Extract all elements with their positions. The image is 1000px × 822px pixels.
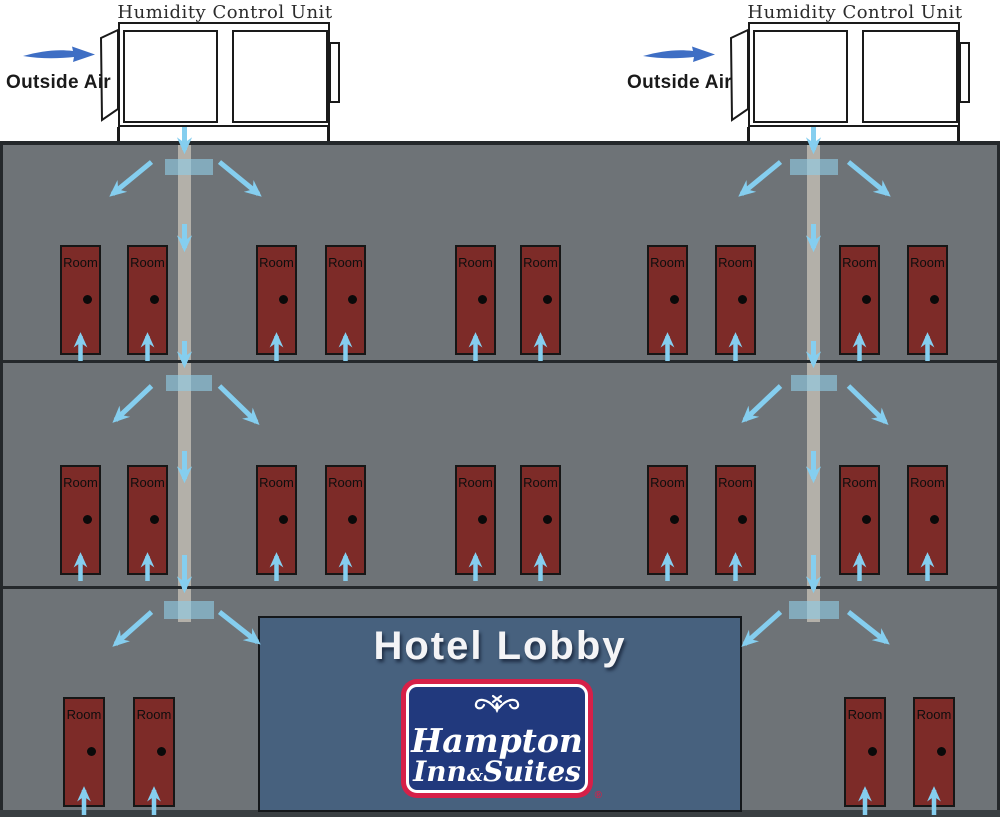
door-knob-icon xyxy=(478,515,487,524)
unit-side-vent xyxy=(329,42,340,103)
door-knob-icon xyxy=(279,295,288,304)
room-door: Room xyxy=(913,697,955,807)
room-door: Room xyxy=(715,465,756,575)
door-knob-icon xyxy=(670,515,679,524)
room-door: Room xyxy=(133,697,175,807)
room-door: Room xyxy=(256,245,297,355)
floor-separator xyxy=(0,586,1000,589)
unit-left-compartment xyxy=(753,30,848,123)
room-door-label: Room xyxy=(909,475,946,490)
room-door-label: Room xyxy=(327,255,364,270)
room-door: Room xyxy=(839,465,880,575)
room-door-label: Room xyxy=(457,475,494,490)
door-knob-icon xyxy=(87,747,96,756)
floor-separator xyxy=(0,360,1000,363)
door-knob-icon xyxy=(83,295,92,304)
room-door-label: Room xyxy=(915,707,953,722)
door-knob-icon xyxy=(738,515,747,524)
room-door-label: Room xyxy=(522,475,559,490)
room-door-label: Room xyxy=(841,255,878,270)
room-door-label: Room xyxy=(62,475,99,490)
humidity-unit-title-right: Humidity Control Unit xyxy=(705,2,1000,23)
room-door: Room xyxy=(520,245,561,355)
hotel-humidity-diagram: { "diagram": { "units": { "left": { "tit… xyxy=(0,0,1000,817)
door-knob-icon xyxy=(348,515,357,524)
ceiling-diffuser xyxy=(166,375,212,391)
door-knob-icon xyxy=(543,515,552,524)
door-knob-icon xyxy=(279,515,288,524)
room-door: Room xyxy=(60,465,101,575)
room-door: Room xyxy=(256,465,297,575)
room-door: Room xyxy=(325,245,366,355)
unit-right-compartment xyxy=(232,30,328,123)
room-door: Room xyxy=(127,245,168,355)
door-knob-icon xyxy=(930,295,939,304)
room-door: Room xyxy=(455,465,496,575)
room-door: Room xyxy=(715,245,756,355)
unit-right-compartment xyxy=(862,30,958,123)
unit-left-compartment xyxy=(123,30,218,123)
door-knob-icon xyxy=(543,295,552,304)
room-door: Room xyxy=(455,245,496,355)
room-door: Room xyxy=(63,697,105,807)
room-door-label: Room xyxy=(717,255,754,270)
door-knob-icon xyxy=(348,295,357,304)
ceiling-diffuser xyxy=(790,159,838,175)
door-knob-icon xyxy=(868,747,877,756)
hampton-inn-suites-logo: Hampton Inn&Suites ® xyxy=(401,679,593,798)
outside-air-arrow xyxy=(643,47,715,63)
outside-air-arrow xyxy=(23,47,95,63)
room-door-label: Room xyxy=(129,255,166,270)
room-door-label: Room xyxy=(846,707,884,722)
room-door-label: Room xyxy=(717,475,754,490)
room-door: Room xyxy=(127,465,168,575)
door-knob-icon xyxy=(157,747,166,756)
door-knob-icon xyxy=(937,747,946,756)
room-door-label: Room xyxy=(129,475,166,490)
room-door-label: Room xyxy=(522,255,559,270)
unit-side-vent xyxy=(959,42,970,103)
room-door: Room xyxy=(647,465,688,575)
room-door-label: Room xyxy=(841,475,878,490)
outside-air-label-right: Outside Air xyxy=(627,72,732,94)
room-door: Room xyxy=(325,465,366,575)
logo-panel: Hampton Inn&Suites xyxy=(406,684,588,793)
ceiling-diffuser xyxy=(791,375,837,391)
door-knob-icon xyxy=(670,295,679,304)
room-door-label: Room xyxy=(62,255,99,270)
door-knob-icon xyxy=(862,295,871,304)
room-door-label: Room xyxy=(65,707,103,722)
logo-flourish-icon xyxy=(469,692,525,716)
room-door-label: Room xyxy=(909,255,946,270)
ceiling-diffuser xyxy=(165,159,213,175)
humidity-unit-title-left: Humidity Control Unit xyxy=(75,2,375,23)
ceiling-diffuser xyxy=(789,601,839,619)
room-door-label: Room xyxy=(135,707,173,722)
room-door-label: Room xyxy=(457,255,494,270)
room-door: Room xyxy=(844,697,886,807)
room-door-label: Room xyxy=(327,475,364,490)
door-knob-icon xyxy=(738,295,747,304)
logo-text-inn-suites: Inn&Suites xyxy=(409,758,585,786)
hotel-lobby: Hotel Lobby Hampton Inn&Suites ® xyxy=(258,616,742,812)
door-knob-icon xyxy=(862,515,871,524)
ceiling-diffuser xyxy=(164,601,214,619)
logo-text-hampton: Hampton xyxy=(409,724,585,757)
room-door-label: Room xyxy=(649,255,686,270)
door-knob-icon xyxy=(150,295,159,304)
room-door-label: Room xyxy=(649,475,686,490)
lobby-title: Hotel Lobby xyxy=(260,624,740,669)
room-door: Room xyxy=(839,245,880,355)
room-door: Room xyxy=(520,465,561,575)
room-door: Room xyxy=(907,465,948,575)
door-knob-icon xyxy=(930,515,939,524)
door-knob-icon xyxy=(478,295,487,304)
room-door-label: Room xyxy=(258,475,295,490)
room-door-label: Room xyxy=(258,255,295,270)
door-knob-icon xyxy=(83,515,92,524)
registered-trademark: ® xyxy=(595,790,602,801)
outside-air-label-left: Outside Air xyxy=(6,72,111,94)
room-door: Room xyxy=(647,245,688,355)
door-knob-icon xyxy=(150,515,159,524)
room-door: Room xyxy=(60,245,101,355)
room-door: Room xyxy=(907,245,948,355)
roofline xyxy=(0,141,1000,145)
